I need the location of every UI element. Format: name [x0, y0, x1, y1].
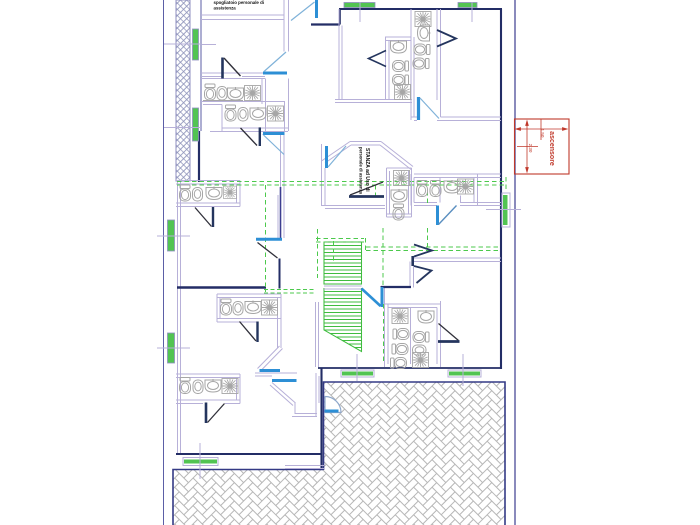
svg-text:1.50: 1.50: [540, 129, 545, 138]
svg-text:personale di assistenza: personale di assistenza: [359, 147, 364, 195]
svg-text:ascensore: ascensore: [548, 131, 555, 166]
svg-text:spogliatoio personale di: spogliatoio personale di: [214, 0, 265, 5]
svg-text:STANZA ad Uso di: STANZA ad Uso di: [364, 148, 370, 192]
svg-text:assistenza: assistenza: [214, 6, 237, 11]
svg-text:2.30: 2.30: [528, 144, 533, 153]
